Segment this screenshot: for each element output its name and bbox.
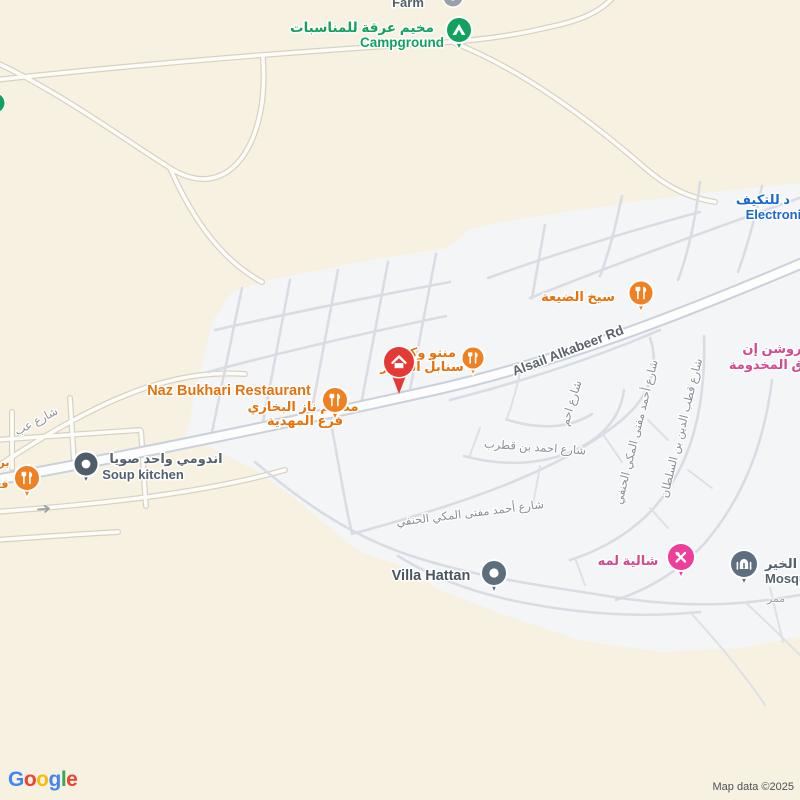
farm-label[interactable]: Farm [392, 0, 424, 10]
mosque-label-en[interactable]: Mosqu [765, 571, 800, 586]
passage-label: ممر [766, 593, 785, 605]
logo-letter: o [24, 768, 36, 792]
dot-icon [489, 568, 498, 577]
logo-letter: o [36, 768, 48, 792]
villa-label[interactable]: Villa Hattan [392, 568, 471, 584]
left-fragment-line1[interactable]: بر [0, 457, 9, 469]
logo-letter: G [8, 768, 24, 792]
logo-letter: g [49, 768, 61, 792]
tool-head [676, 552, 680, 556]
map-canvas[interactable]: Alsail Alkabeer Rd شارع عب شارع احمد بن … [0, 0, 800, 800]
mosque-label-ar[interactable]: الخير [764, 556, 797, 571]
campground-label-ar[interactable]: مخيم عرقة للمناسبات [290, 20, 434, 35]
soup-label-en[interactable]: Soup kitchen [102, 467, 184, 482]
roshan-label-line2[interactable]: ق المخدومة [729, 357, 800, 372]
map-attribution: Map data ©2025 [713, 781, 795, 793]
soup-label-ar[interactable]: اندومي واحد صويا [109, 451, 222, 466]
map-svg: Alsail Alkabeer Rd شارع عب شارع احمد بن … [0, 0, 800, 800]
naz-label-ar2[interactable]: فرع المهدية [267, 413, 343, 428]
google-logo[interactable]: Google [8, 768, 77, 792]
campground-label-en[interactable]: Campground [360, 35, 444, 50]
dot-icon [82, 460, 91, 469]
roshan-label-line1[interactable]: روشن إن [742, 341, 800, 356]
logo-letter: e [66, 768, 77, 792]
naz-label-en[interactable]: Naz Bukhari Restaurant [147, 383, 311, 399]
electronics-label-ar[interactable]: د للتكيف [736, 192, 790, 207]
seekh-label[interactable]: سيخ الضيعة [541, 289, 615, 304]
chalet-label[interactable]: شالية لمه [598, 553, 659, 568]
left-fragment-line2[interactable]: ف [0, 479, 8, 491]
electronics-label-en[interactable]: Electronic [746, 207, 800, 222]
